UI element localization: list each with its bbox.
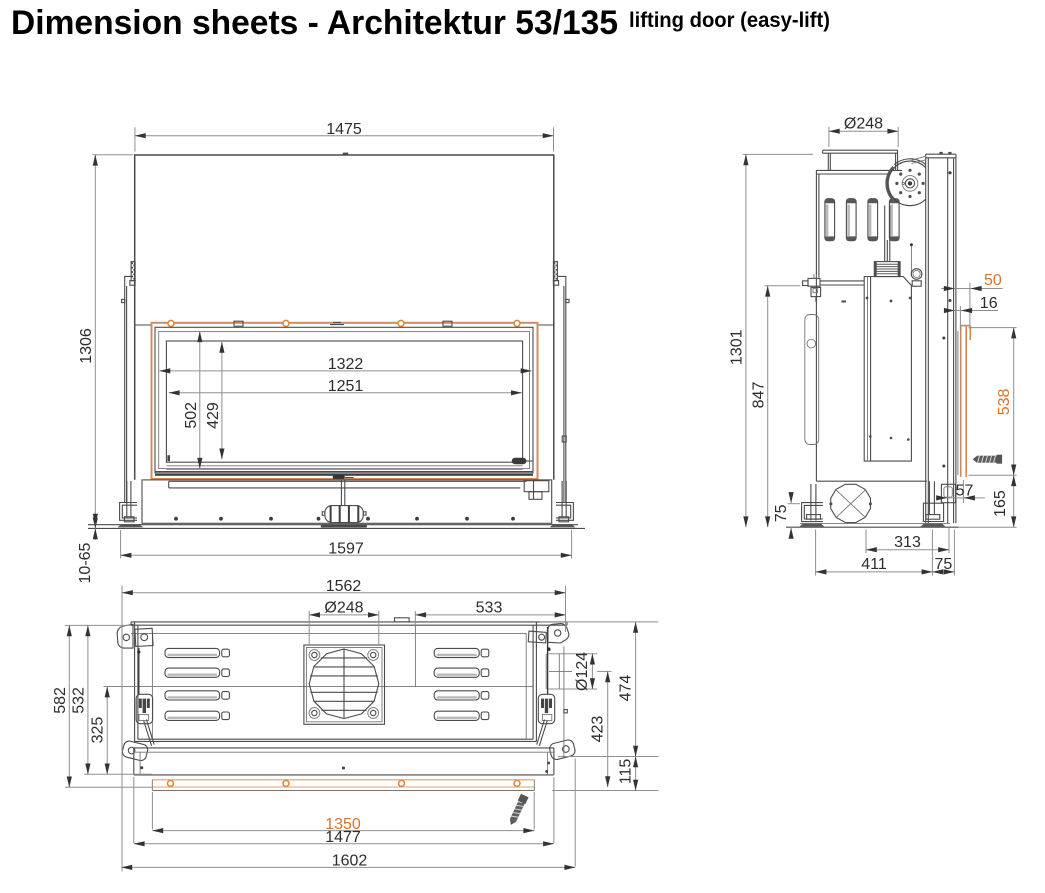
svg-text:1562: 1562 [326,578,362,595]
svg-text:474: 474 [618,675,635,702]
svg-text:1322: 1322 [328,356,364,373]
svg-text:Ø248: Ø248 [844,116,883,133]
svg-text:538: 538 [996,388,1013,415]
svg-text:533: 533 [476,599,503,616]
svg-text:313: 313 [894,534,921,551]
svg-text:532: 532 [70,687,87,714]
svg-text:325: 325 [90,717,107,744]
svg-text:75: 75 [935,556,953,573]
svg-text:10-65: 10-65 [77,542,94,583]
svg-text:1301: 1301 [729,329,746,365]
svg-text:16: 16 [980,295,998,312]
svg-text:50: 50 [984,272,1002,289]
svg-text:1597: 1597 [328,541,364,558]
svg-text:582: 582 [52,687,69,714]
svg-text:165: 165 [992,490,1009,517]
svg-text:1475: 1475 [326,121,362,138]
svg-text:75: 75 [773,504,790,522]
svg-text:1251: 1251 [328,378,364,395]
svg-text:115: 115 [618,759,635,785]
svg-text:1602: 1602 [332,853,368,870]
svg-text:502: 502 [183,402,200,429]
svg-text:1306: 1306 [78,328,95,364]
svg-text:Ø124: Ø124 [574,652,591,691]
svg-text:Dimension sheets - Architektur: Dimension sheets - Architektur 53/135 [11,4,618,42]
svg-text:Ø248: Ø248 [324,599,363,616]
svg-text:1477: 1477 [325,829,361,846]
svg-text:429: 429 [205,402,222,429]
svg-text:423: 423 [589,716,606,743]
svg-text:847: 847 [750,382,767,409]
svg-text:lifting door (easy-lift): lifting door (easy-lift) [629,9,830,32]
svg-text:411: 411 [861,556,887,573]
svg-text:57: 57 [956,482,974,499]
